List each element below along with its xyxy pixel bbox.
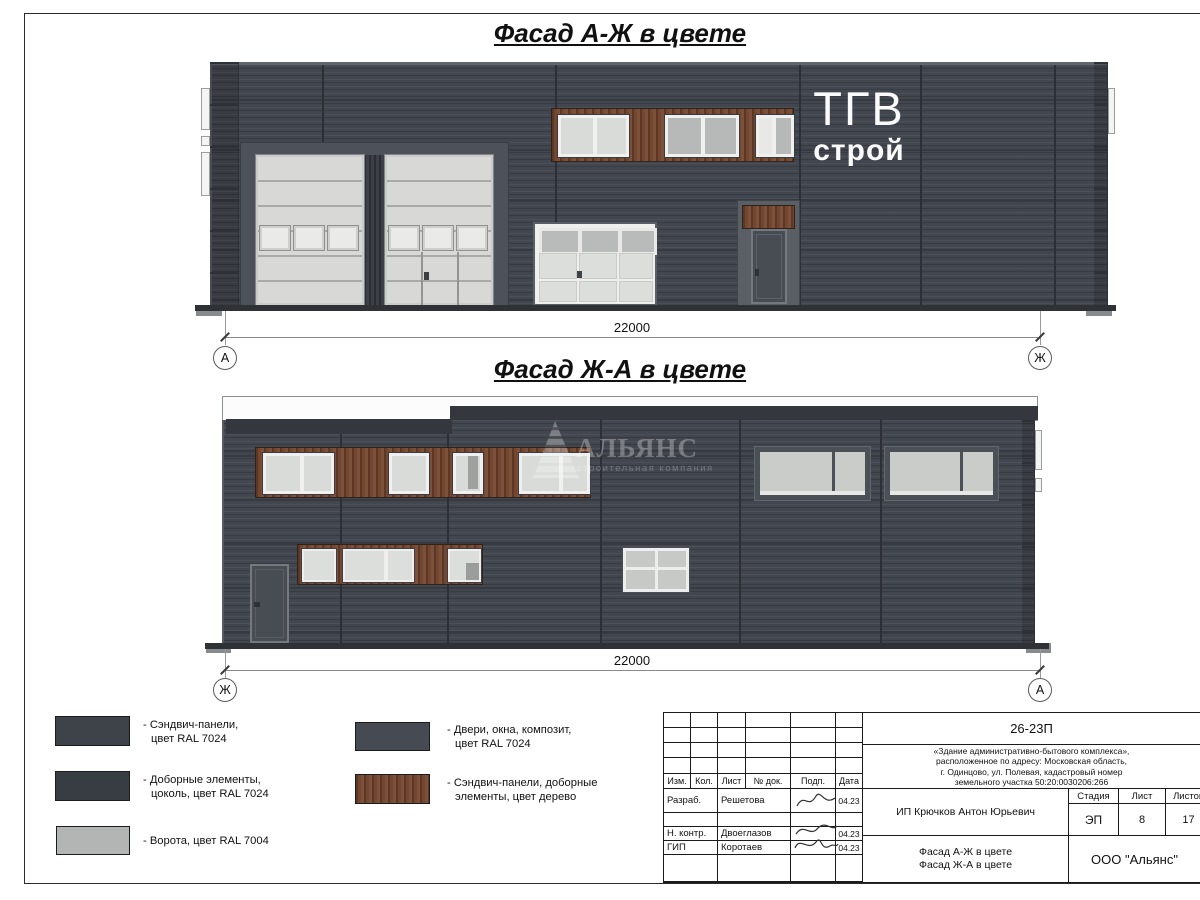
window-mullion	[300, 456, 304, 491]
company-cell: ООО "Альянс"	[1068, 835, 1200, 883]
facade-2-title: Фасад Ж-А в цвете	[270, 354, 970, 385]
client-cell: ИП Крючков Антон Юрьевич	[862, 788, 1069, 836]
watermark-tagline: строительная компания	[577, 463, 714, 474]
titleblock-empty-cell	[791, 713, 836, 728]
description-line: г. Одинцово, ул. Полевая, кадастровый но…	[941, 767, 1123, 778]
titleblock-empty-cell	[718, 743, 746, 758]
band-window	[263, 453, 334, 494]
titleblock-empty-cell	[836, 743, 862, 758]
titleblock-empty-cell	[718, 713, 746, 728]
window-sill	[890, 491, 993, 495]
window-sill	[760, 491, 865, 495]
titleblock-empty-cell	[664, 813, 718, 827]
titleblock-empty-cell	[791, 728, 836, 743]
parapet-cap-right	[450, 406, 1038, 420]
glazing-pane	[539, 253, 577, 279]
wood-accent-band	[551, 108, 794, 162]
window-mullion	[384, 551, 388, 580]
legend-swatch	[355, 722, 430, 751]
titleblock-empty-cell	[718, 728, 746, 743]
legend-label: - Сэндвич-панели, цвет RAL 7024	[143, 719, 238, 746]
door-handle	[755, 269, 759, 276]
parapet-cap-left	[226, 419, 452, 434]
signature-squiggle	[792, 822, 840, 856]
titleblock-empty-cell	[746, 713, 791, 728]
titleblock-empty-cell	[836, 855, 862, 882]
col-header-list: Лист	[718, 774, 746, 789]
row-name: Двоеглазов	[718, 827, 791, 841]
facade-1-edge-trim	[201, 152, 210, 196]
extension-line	[225, 649, 226, 678]
band-window	[448, 549, 481, 582]
sheets-total-cell: 17	[1165, 803, 1200, 836]
transom-pane	[539, 228, 581, 255]
titleblock-empty-cell	[718, 758, 746, 774]
window-pane-gray	[466, 563, 479, 580]
gate-window	[389, 226, 419, 250]
glazing-pane	[579, 253, 617, 279]
band-window	[756, 115, 794, 157]
frame-top-line	[24, 13, 1200, 14]
legend-label-line: элементы, цвет дерево	[447, 791, 597, 805]
col-header-doc: № док.	[746, 774, 791, 789]
dimension-label: 22000	[560, 653, 704, 668]
window-mullion	[960, 452, 963, 495]
facade-1-edge-trim	[201, 88, 210, 130]
legend-label-line: - Сэндвич-панели,	[143, 719, 238, 733]
gate-window	[260, 226, 290, 250]
titleblock-empty-cell	[664, 743, 691, 758]
entry-door	[250, 564, 289, 643]
row-name: Коротаев	[718, 841, 791, 855]
stage-label-cell: Стадия	[1068, 788, 1119, 804]
facade-1-edge-trim	[201, 136, 210, 146]
sheet-number-cell: 8	[1118, 803, 1166, 836]
facade-2-right-corner	[1022, 420, 1035, 645]
description-line: расположенное по адресу: Московская обла…	[936, 756, 1127, 767]
legend-swatch	[56, 826, 130, 855]
col-header-data: Дата	[836, 774, 862, 789]
titleblock-empty-cell	[664, 758, 691, 774]
col-header-podp: Подп.	[791, 774, 836, 789]
titleblock-empty-cell	[746, 743, 791, 758]
sign-line-2: строй	[802, 134, 916, 167]
titleblock-empty-cell	[836, 713, 862, 728]
titleblock-empty-cell	[836, 728, 862, 743]
gate-center-post	[364, 155, 385, 305]
entry-door	[751, 229, 787, 304]
row-role: Разраб.	[664, 789, 718, 813]
entrance-glazing	[533, 222, 657, 306]
transom-pane	[579, 228, 621, 255]
subject-line: Фасад Ж-А в цвете	[919, 859, 1012, 872]
legend-label-line: - Сэндвич-панели, доборные	[447, 777, 597, 791]
description-line: земельного участка 50:20:0030206:266	[955, 777, 1108, 788]
titleblock-empty-cell	[691, 743, 718, 758]
window-mullion	[593, 118, 597, 154]
window-mullion	[701, 118, 705, 154]
window-large	[755, 447, 870, 500]
axis-marker-zh: Ж	[1028, 346, 1052, 370]
legend-label-line: цвет RAL 7024	[143, 733, 238, 747]
frame-bottom-line	[24, 883, 1200, 884]
extension-line	[1040, 311, 1041, 345]
band-window	[665, 115, 739, 157]
titleblock-empty-cell	[691, 728, 718, 743]
doc-number-cell: 26-23П	[862, 712, 1200, 745]
transom-pane	[619, 228, 657, 255]
window-large	[885, 447, 998, 500]
window-single	[623, 548, 689, 592]
axis-marker-a: А	[213, 346, 237, 370]
titleblock-empty-cell	[664, 855, 718, 882]
sheets-label-cell: Листов	[1165, 788, 1200, 804]
titleblock-empty-cell	[791, 743, 836, 758]
glazing-pane	[579, 281, 617, 302]
gate-window	[423, 226, 453, 250]
legend-swatch	[55, 716, 130, 746]
dimension-line	[225, 670, 1040, 671]
col-header-kol: Кол.	[691, 774, 718, 789]
facade-2-edge-trim	[1035, 478, 1042, 492]
legend-label-line: цвет RAL 7024	[447, 738, 571, 752]
band-window	[453, 453, 483, 494]
band-window	[302, 549, 336, 582]
facade-2-edge-trim	[1035, 430, 1042, 470]
subject-line: Фасад А-Ж в цвете	[919, 846, 1012, 859]
door-wood-panel	[742, 205, 795, 229]
row-role: Н. контр.	[664, 827, 718, 841]
glazing-pane	[539, 281, 577, 302]
legend-label-line: цоколь, цвет RAL 7024	[143, 788, 269, 802]
legend-label: - Доборные элементы, цоколь, цвет RAL 70…	[143, 774, 269, 801]
legend-swatch-wood	[355, 774, 430, 804]
row-name: Решетова	[718, 789, 791, 813]
axis-marker-a: А	[1028, 678, 1052, 702]
drawing-sheet: Фасад А-Ж в цвете	[0, 0, 1200, 900]
facade-1-title: Фасад А-Ж в цвете	[270, 18, 970, 49]
titleblock-empty-cell	[791, 855, 836, 882]
facade-1-left-corner	[210, 62, 239, 309]
row-date: 04.23	[836, 789, 862, 813]
titleblock-empty-cell	[791, 758, 836, 774]
description-line: «Здание административно-бытового комплек…	[934, 746, 1130, 757]
window-mullion	[655, 551, 658, 589]
wood-accent-band	[297, 544, 483, 585]
sign-line-1: ТГВ	[802, 84, 916, 134]
gate-window	[328, 226, 358, 250]
legend-label: - Ворота, цвет RAL 7004	[143, 835, 269, 849]
ground-line	[195, 305, 1116, 311]
project-description-cell: «Здание административно-бытового комплек…	[862, 744, 1200, 789]
signature-squiggle	[794, 790, 838, 812]
wicket-door-line	[457, 252, 459, 305]
legend-label-line: - Доборные элементы,	[143, 774, 269, 788]
glazing-pane	[619, 281, 653, 302]
titleblock-empty-cell	[746, 728, 791, 743]
titleblock-empty-cell	[746, 758, 791, 774]
door-leaf-line	[756, 234, 782, 299]
legend-label: - Сэндвич-панели, доборные элементы, цве…	[447, 777, 597, 804]
gate-window	[294, 226, 324, 250]
legend-swatch	[55, 771, 130, 801]
band-window	[558, 115, 629, 157]
titleblock-empty-cell	[718, 855, 791, 882]
window-mullion	[626, 567, 686, 570]
titleblock-empty-cell	[664, 713, 691, 728]
gate-window	[457, 226, 487, 250]
dimension-line	[225, 337, 1040, 338]
extension-line	[1040, 649, 1041, 678]
axis-marker-zh: Ж	[213, 678, 237, 702]
dimension-label: 22000	[560, 320, 704, 335]
band-window	[343, 549, 414, 582]
titleblock-empty-cell	[691, 758, 718, 774]
legend-label-line: - Ворота, цвет RAL 7004	[143, 835, 269, 849]
band-window	[389, 453, 429, 494]
building-sign: ТГВ строй	[802, 84, 916, 167]
titleblock-empty-cell	[836, 758, 862, 774]
facade-1-edge-trim	[1108, 88, 1115, 134]
watermark-name: АЛЬЯНС	[576, 433, 698, 464]
col-header-izm: Изм.	[664, 774, 691, 789]
window-pane-gray	[775, 118, 791, 154]
window-mullion	[832, 452, 835, 495]
stage-value-cell: ЭП	[1068, 803, 1119, 836]
wicket-door-handle	[424, 272, 429, 280]
door-handle	[577, 271, 582, 278]
glazing-pane	[619, 253, 653, 279]
door-handle	[254, 602, 260, 607]
legend-label: - Двери, окна, композит, цвет RAL 7024	[447, 724, 571, 751]
titleblock-empty-cell	[664, 728, 691, 743]
ground-line	[205, 643, 1049, 649]
sheet-label-cell: Лист	[1118, 788, 1166, 804]
wicket-door-line	[421, 252, 423, 305]
window-pane-gray	[468, 456, 478, 489]
subject-cell: Фасад А-Ж в цвете Фасад Ж-А в цвете	[862, 835, 1069, 883]
window-mullion	[772, 118, 776, 154]
facade-1-right-corner	[1094, 62, 1108, 309]
extension-line	[225, 311, 226, 345]
titleblock-empty-cell	[691, 713, 718, 728]
legend-label-line: - Двери, окна, композит,	[447, 724, 571, 738]
titleblock-empty-cell	[718, 813, 791, 827]
row-role: ГИП	[664, 841, 718, 855]
frame-left-line	[24, 13, 25, 884]
